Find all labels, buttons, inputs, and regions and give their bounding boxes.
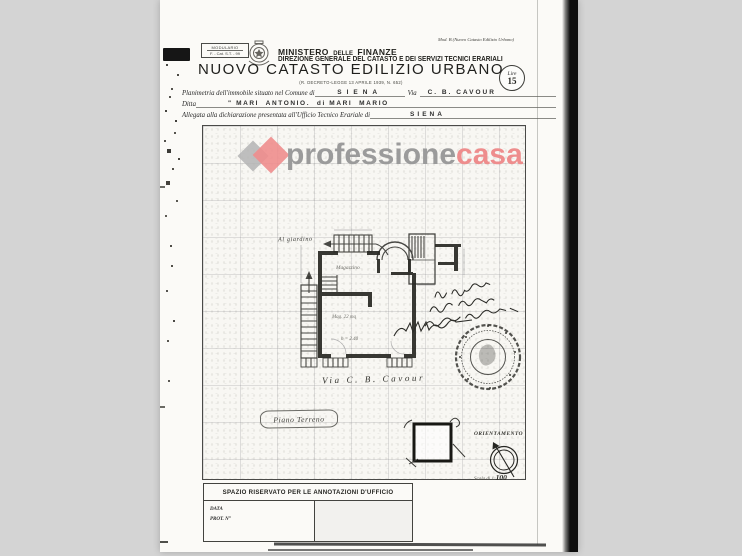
form-line-ufficio: Allegata alla dichiarazione presentata a… bbox=[182, 111, 556, 119]
page-fold-line bbox=[537, 0, 538, 545]
official-seal-stamp bbox=[448, 317, 528, 397]
watermark-diamond-red-icon bbox=[253, 137, 290, 174]
black-redaction-block bbox=[163, 48, 190, 61]
scan-speckles bbox=[162, 0, 164, 2]
annotations-empty-cell bbox=[315, 501, 412, 541]
watermark-word-gray: professione bbox=[286, 138, 456, 171]
label-orientamento: ORIENTAMENTO bbox=[474, 431, 523, 437]
scale-prefix: Scala di 1: bbox=[474, 477, 496, 482]
ufficio-label: Allegata alla dichiarazione presentata a… bbox=[182, 112, 370, 119]
scan-artifact-line-1 bbox=[274, 543, 546, 547]
annotations-date-cell: DATA PROT. N° bbox=[204, 501, 315, 541]
data-label: DATA bbox=[210, 505, 314, 515]
mod-reference: Mod. B (Nuovo Catasto Edilizio Urbano) bbox=[438, 37, 514, 42]
watermark-word-red: casa bbox=[456, 138, 523, 171]
watermark: professionecasa bbox=[238, 136, 538, 178]
annotations-title: SPAZIO RISERVATO PER LE ANNOTAZIONI D'UF… bbox=[223, 489, 394, 496]
corner-mark bbox=[160, 541, 168, 543]
prot-label: PROT. N° bbox=[210, 515, 314, 525]
label-room-magazzino: Magazzino bbox=[336, 265, 360, 271]
comune-value: SIENA bbox=[315, 89, 405, 97]
modulario-line2: F. - Cat. S.T. - 99 bbox=[207, 50, 243, 56]
scale-note: Scala di 1:100 bbox=[474, 467, 507, 485]
form-line-comune: Planimetria dell'immobile situato nel Co… bbox=[182, 89, 556, 97]
ditta-value: " MARI ANTONIO. di MARI MARIO bbox=[196, 100, 556, 108]
lire-value: 15 bbox=[508, 77, 517, 86]
scanned-cadastral-document: MODULARIO F. - Cat. S.T. - 99 MINISTERO … bbox=[0, 0, 742, 556]
label-floor: Piano Terreno bbox=[273, 414, 324, 424]
form-line-ditta: Ditta " MARI ANTONIO. di MARI MARIO bbox=[182, 100, 556, 108]
via-label: Via bbox=[405, 90, 420, 97]
label-al-giardino: Al giardino bbox=[278, 236, 313, 244]
ditta-label: Ditta bbox=[182, 101, 196, 108]
via-value: C. B. CAVOUR bbox=[420, 89, 556, 97]
label-room-height: h = 2.40 bbox=[341, 337, 358, 342]
margin-tick-1 bbox=[160, 186, 165, 188]
scan-artifact-line-2 bbox=[268, 549, 473, 551]
comune-label: Planimetria dell'immobile situato nel Co… bbox=[182, 90, 315, 97]
label-floor-cartouche: Piano Terreno bbox=[260, 409, 338, 428]
paper-sheet: MODULARIO F. - Cat. S.T. - 99 MINISTERO … bbox=[160, 0, 578, 552]
document-subtitle: (R. DECRETO-LEGGE 13 APRILE 1939, N. 652… bbox=[198, 80, 504, 85]
scan-edge-band bbox=[562, 0, 578, 552]
annotations-box: SPAZIO RISERVATO PER LE ANNOTAZIONI D'UF… bbox=[203, 483, 413, 542]
annotations-header: SPAZIO RISERVATO PER LE ANNOTAZIONI D'UF… bbox=[204, 484, 412, 501]
label-room-area: Mag. 22 mq bbox=[332, 315, 356, 320]
modulario-stamp: MODULARIO F. - Cat. S.T. - 99 bbox=[201, 43, 249, 58]
document-title: NUOVO CATASTO EDILIZIO URBANO bbox=[198, 61, 504, 78]
margin-tick-2 bbox=[160, 406, 165, 408]
watermark-text: professionecasa bbox=[286, 140, 523, 170]
ufficio-value: SIENA bbox=[370, 111, 556, 119]
detail-square bbox=[398, 412, 470, 476]
scale-value: 100 bbox=[496, 473, 507, 482]
